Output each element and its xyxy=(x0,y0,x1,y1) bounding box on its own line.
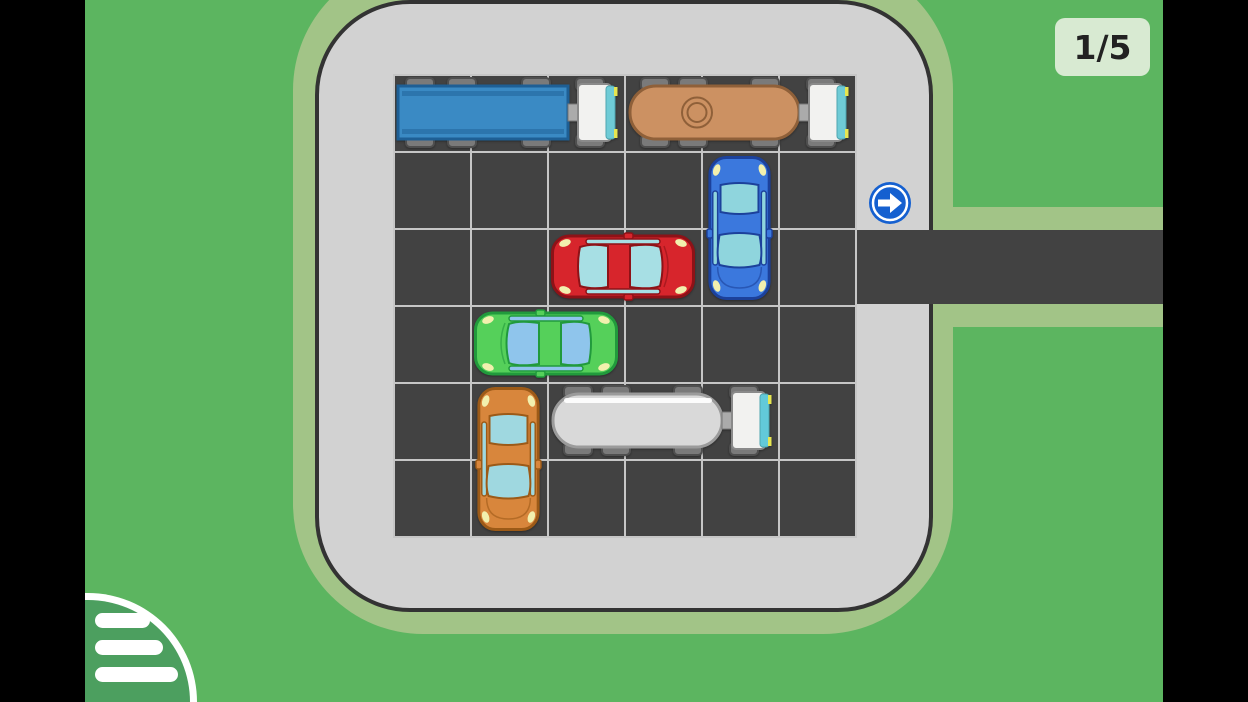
grid-cell xyxy=(703,307,778,382)
vehicle-green-car[interactable] xyxy=(473,308,619,379)
level-badge-text: 1/5 xyxy=(1074,28,1132,67)
grid-cell xyxy=(626,153,701,228)
letterbox-left xyxy=(0,0,85,702)
exit-sign xyxy=(868,181,912,225)
level-badge: 1/5 xyxy=(1055,18,1150,76)
grid-cell xyxy=(780,153,855,228)
letterbox-right xyxy=(1163,0,1248,702)
grid-cell xyxy=(626,461,701,536)
grid-cell xyxy=(780,307,855,382)
vehicle-blue-car[interactable] xyxy=(705,155,774,301)
grid-cell xyxy=(626,307,701,382)
vehicle-white-tanker[interactable] xyxy=(550,385,773,456)
grid-cell xyxy=(472,230,547,305)
grid-cell xyxy=(780,384,855,459)
menu-bar xyxy=(95,640,163,655)
menu-bar xyxy=(95,613,150,628)
vehicle-red-car[interactable] xyxy=(550,231,696,302)
game-viewport: 1/5 xyxy=(85,0,1163,702)
game-stage: 1/5 xyxy=(0,0,1248,702)
grid-cell xyxy=(780,230,855,305)
grid-cell xyxy=(703,461,778,536)
vehicle-orange-car[interactable] xyxy=(474,386,543,532)
menu-bar xyxy=(95,667,178,682)
grid-cell xyxy=(395,307,470,382)
arrow-right-icon xyxy=(868,181,912,225)
grid-cell xyxy=(395,230,470,305)
grid-cell xyxy=(549,153,624,228)
menu-button[interactable] xyxy=(85,593,197,702)
grid-cell xyxy=(395,153,470,228)
grid-cell xyxy=(472,153,547,228)
grid-cell xyxy=(395,384,470,459)
grid-cell xyxy=(780,461,855,536)
grid-cell xyxy=(549,461,624,536)
vehicle-tan-tanker[interactable] xyxy=(627,77,850,148)
grid-cell xyxy=(395,461,470,536)
vehicle-blue-truck[interactable] xyxy=(396,77,619,148)
exit-road xyxy=(851,230,1163,304)
